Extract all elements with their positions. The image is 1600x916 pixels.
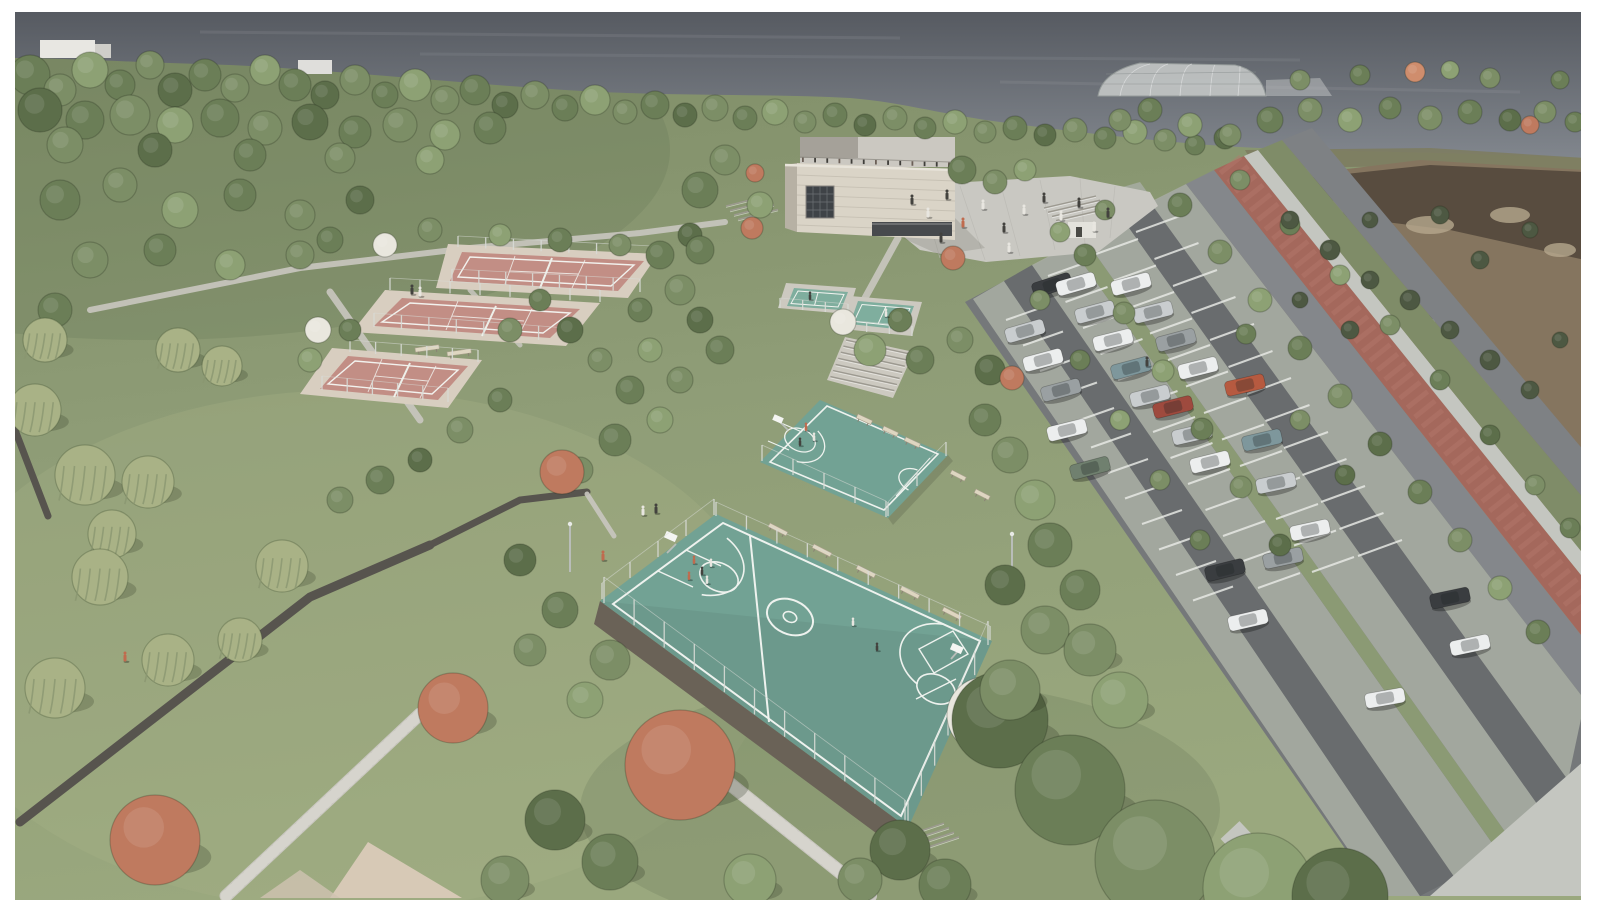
rooftop-person — [826, 158, 828, 163]
tree-highlight — [592, 351, 603, 362]
tree-highlight — [1222, 127, 1232, 137]
tree-highlight — [892, 311, 903, 322]
tree-highlight — [585, 89, 599, 103]
tree-highlight — [617, 103, 628, 114]
tree-highlight — [642, 341, 653, 352]
tree-highlight — [1353, 68, 1362, 77]
tree-highlight — [596, 645, 614, 663]
tree-highlight — [1097, 130, 1107, 140]
tree-highlight — [1007, 119, 1018, 130]
tree-highlight — [547, 456, 567, 476]
tree-highlight — [1028, 612, 1050, 634]
tree-highlight — [1452, 531, 1463, 542]
person-body — [813, 435, 816, 441]
tree-highlight — [1252, 291, 1263, 302]
tree-highlight — [1306, 861, 1349, 904]
tree-highlight — [519, 638, 533, 652]
tree-highlight — [284, 73, 298, 87]
person-body — [1008, 246, 1011, 253]
tree-highlight — [435, 90, 448, 103]
tree-highlight — [525, 85, 538, 98]
tree-highlight — [1554, 73, 1562, 81]
tree-highlight — [412, 451, 423, 462]
tree-highlight — [25, 94, 45, 114]
person-head — [852, 617, 855, 620]
tree-highlight — [302, 351, 313, 362]
tree-highlight — [239, 143, 253, 157]
tree-highlight — [149, 238, 163, 252]
tree-highlight — [290, 245, 303, 258]
tree-highlight — [706, 99, 718, 111]
person-head — [701, 566, 704, 569]
tree-highlight — [124, 807, 165, 848]
tree-highlight — [1403, 293, 1412, 302]
person-body — [701, 569, 704, 575]
tree-highlight — [879, 828, 906, 855]
tree-highlight — [991, 570, 1009, 588]
tree-highlight — [488, 862, 510, 884]
person-body — [124, 655, 127, 662]
tree-highlight — [650, 245, 663, 258]
person-body — [1107, 211, 1110, 218]
tree-highlight — [309, 321, 321, 333]
tree-highlight — [1483, 71, 1492, 80]
tree-highlight — [987, 173, 998, 184]
tree-highlight — [1113, 413, 1122, 422]
tree-highlight — [917, 120, 927, 130]
tree-highlight — [207, 104, 224, 121]
tree-highlight — [72, 106, 89, 123]
tree-highlight — [1017, 162, 1027, 172]
tree-highlight — [1364, 214, 1371, 221]
tree-highlight — [110, 74, 124, 88]
person-head — [693, 555, 696, 558]
tree-highlight — [1032, 750, 1082, 800]
dirt-mound — [1544, 243, 1576, 257]
person-head — [706, 575, 709, 578]
tree-highlight — [492, 391, 503, 402]
rooftop-person — [875, 160, 877, 165]
tree-highlight — [465, 79, 479, 93]
person-head — [813, 432, 816, 435]
tree-highlight — [420, 150, 433, 163]
willow-tree — [25, 658, 85, 718]
tree-highlight — [590, 842, 615, 867]
tree-highlight — [682, 226, 693, 237]
tree-highlight — [797, 114, 807, 124]
building-upper-dark — [800, 137, 858, 158]
tree-highlight — [612, 237, 622, 247]
tree-highlight — [140, 55, 153, 68]
tree-highlight — [1383, 318, 1392, 327]
tree-highlight — [290, 204, 304, 218]
person-body — [642, 509, 645, 516]
tree-highlight — [345, 69, 359, 83]
rooftop-person — [802, 158, 804, 163]
tree-highlight — [561, 321, 573, 333]
tree-highlight — [1194, 421, 1204, 431]
person-body — [852, 620, 855, 626]
person-body — [693, 558, 696, 564]
tree-highlight — [163, 78, 178, 93]
tree-highlight — [502, 321, 513, 332]
tree-highlight — [46, 185, 64, 203]
person-body — [1060, 214, 1063, 221]
tree-highlight — [1524, 224, 1531, 231]
tree-highlight — [1408, 65, 1417, 74]
tree-highlight — [670, 279, 684, 293]
person-head — [602, 551, 605, 554]
tree-highlight — [1434, 208, 1442, 216]
tree-highlight — [253, 116, 268, 131]
tree-highlight — [632, 301, 643, 312]
rooftop-person — [912, 161, 914, 166]
tree-highlight — [116, 100, 134, 118]
park-rendering-page — [0, 0, 1600, 916]
tree-highlight — [1239, 327, 1248, 336]
tree-highlight — [1462, 103, 1473, 114]
tree-highlight — [1483, 428, 1492, 437]
person-head — [1107, 208, 1110, 211]
tree-highlight — [1233, 173, 1242, 182]
tree-highlight — [1072, 631, 1095, 654]
tree-highlight — [677, 106, 688, 117]
tree-highlight — [691, 311, 703, 323]
person-head — [911, 195, 914, 198]
tree-highlight — [1524, 383, 1532, 391]
building-side — [785, 163, 797, 232]
tree-highlight — [1233, 479, 1243, 489]
rooftop-person — [899, 161, 901, 166]
tree-highlight — [1212, 243, 1223, 254]
tree-highlight — [143, 138, 158, 153]
tree-highlight — [1524, 118, 1532, 126]
tree-highlight — [1188, 138, 1197, 147]
tree-highlight — [376, 86, 388, 98]
tree-highlight — [710, 340, 723, 353]
tree-highlight — [1364, 273, 1372, 281]
tree-highlight — [572, 687, 588, 703]
tree-highlight — [194, 63, 208, 77]
person-body — [706, 578, 709, 584]
tree-highlight — [859, 338, 873, 352]
person-body — [799, 440, 802, 446]
tree-highlight — [1116, 305, 1126, 315]
tree-highlight — [1067, 121, 1078, 132]
tree-highlight — [422, 221, 433, 232]
tree-highlight — [377, 236, 388, 247]
tree-highlight — [220, 254, 234, 268]
rooftop-person — [887, 160, 889, 165]
tree-highlight — [887, 109, 898, 120]
person-head — [927, 208, 930, 211]
tree-highlight — [344, 120, 358, 134]
tree-highlight — [1293, 73, 1302, 82]
tree-highlight — [1412, 483, 1423, 494]
tree-highlight — [690, 240, 703, 253]
tree-highlight — [1004, 369, 1015, 380]
willow-tree — [23, 318, 67, 362]
tree-highlight — [766, 103, 778, 115]
willow-tree — [72, 549, 128, 605]
person-body — [655, 507, 658, 514]
person-head — [1078, 198, 1081, 201]
tree-highlight — [1302, 101, 1313, 112]
tree-highlight — [370, 470, 383, 483]
person-body — [1023, 208, 1026, 215]
tree-highlight — [43, 298, 58, 313]
tree-highlight — [255, 59, 269, 73]
tree-highlight — [1033, 293, 1042, 302]
tree-highlight — [947, 113, 958, 124]
person-head — [809, 291, 812, 294]
tree-highlight — [1323, 243, 1332, 252]
dirt-mound — [1490, 207, 1530, 223]
person-body — [602, 554, 605, 561]
tree-highlight — [945, 249, 956, 260]
tree-highlight — [429, 682, 461, 714]
tree-highlight — [1021, 485, 1039, 503]
person-head — [1146, 357, 1149, 360]
light-pole-head — [1010, 532, 1014, 536]
person-head — [124, 652, 127, 655]
tree-highlight — [52, 132, 68, 148]
tree-highlight — [1433, 373, 1442, 382]
tree-highlight — [162, 112, 178, 128]
tree-highlight — [1502, 112, 1512, 122]
person-body — [1043, 196, 1046, 203]
willow-tree — [218, 618, 262, 662]
person-body — [876, 645, 879, 651]
tree-highlight — [1492, 579, 1503, 590]
person-head — [1060, 211, 1063, 214]
tree-highlight — [1338, 468, 1347, 477]
tree-highlight — [77, 247, 93, 263]
tree-highlight — [1157, 132, 1167, 142]
tree-highlight — [556, 99, 568, 111]
tree-highlight — [1284, 213, 1292, 221]
tree-highlight — [1113, 816, 1167, 870]
tree-highlight — [1073, 353, 1082, 362]
tree-highlight — [751, 196, 763, 208]
tree-highlight — [330, 147, 344, 161]
person-body — [940, 236, 943, 243]
tree-highlight — [744, 220, 754, 230]
person-head — [411, 285, 414, 288]
tree-highlight — [1100, 680, 1125, 705]
person-head — [642, 506, 645, 509]
tree-highlight — [1037, 127, 1047, 137]
tree-highlight — [297, 109, 313, 125]
community-building — [785, 137, 955, 240]
tree-highlight — [1066, 575, 1084, 593]
tree-highlight — [952, 160, 965, 173]
rooftop-person — [839, 159, 841, 164]
tree-highlight — [1333, 268, 1342, 277]
tree-highlight — [229, 183, 243, 197]
person-head — [419, 287, 422, 290]
rooftop-person — [814, 158, 816, 163]
tree-highlight — [1372, 435, 1383, 446]
tree-highlight — [16, 60, 34, 78]
tree-highlight — [910, 350, 923, 363]
person-body — [885, 311, 888, 317]
rooftop-person — [936, 162, 938, 167]
person-head — [1023, 205, 1026, 208]
tree-highlight — [331, 491, 343, 503]
tree-highlight — [435, 124, 449, 138]
tree-highlight — [1292, 339, 1303, 350]
tree-highlight — [1382, 100, 1392, 110]
tree-highlight — [642, 725, 692, 775]
tree-highlight — [321, 231, 333, 243]
tree-highlight — [1293, 413, 1302, 422]
tree-highlight — [620, 380, 633, 393]
tree-highlight — [671, 371, 683, 383]
tree-highlight — [1035, 529, 1055, 549]
tree-highlight — [1537, 104, 1547, 114]
person-head — [962, 218, 965, 221]
tree-highlight — [1568, 115, 1577, 124]
tree-highlight — [1342, 111, 1353, 122]
willow-tree — [122, 456, 174, 508]
person-head — [799, 437, 802, 440]
tree-highlight — [315, 85, 328, 98]
person-head — [946, 190, 949, 193]
willow-tree — [256, 540, 308, 592]
tree-highlight — [1444, 323, 1452, 331]
tree-highlight — [1112, 112, 1122, 122]
tree-highlight — [1272, 537, 1282, 547]
tree-highlight — [534, 798, 561, 825]
tree-highlight — [451, 421, 463, 433]
tree-highlight — [997, 442, 1013, 458]
tree-highlight — [404, 73, 418, 87]
tree-highlight — [1077, 247, 1087, 257]
person-body — [805, 425, 808, 431]
tree-highlight — [1554, 334, 1561, 341]
person-head — [940, 233, 943, 236]
person-head — [655, 504, 658, 507]
tree-highlight — [1530, 623, 1541, 634]
tree-highlight — [1172, 196, 1183, 207]
person-body — [411, 288, 414, 295]
tree-highlight — [479, 116, 493, 130]
tree-highlight — [350, 190, 363, 203]
person-head — [1008, 243, 1011, 246]
person-head — [710, 558, 713, 561]
tree-highlight — [1182, 116, 1193, 127]
tree-highlight — [1261, 111, 1273, 123]
person-head — [1003, 223, 1006, 226]
person-head — [1093, 222, 1096, 225]
tree-highlight — [1332, 387, 1343, 398]
willow-tree — [142, 634, 194, 686]
person-body — [809, 294, 812, 300]
tree-highlight — [845, 864, 865, 884]
willow-tree — [202, 346, 242, 386]
tree-highlight — [732, 861, 755, 884]
tree-highlight — [834, 313, 846, 325]
tree-highlight — [645, 95, 658, 108]
tree-highlight — [1483, 353, 1492, 362]
tree-highlight — [857, 117, 867, 127]
tree-highlight — [951, 331, 963, 343]
tree-highlight — [687, 177, 703, 193]
tree-highlight — [388, 113, 403, 128]
tree-highlight — [1142, 101, 1153, 112]
person-head — [805, 422, 808, 425]
tree-highlight — [1422, 109, 1433, 120]
tree-highlight — [715, 149, 729, 163]
tree-highlight — [509, 548, 523, 562]
person-head — [1043, 193, 1046, 196]
tree-highlight — [342, 322, 352, 332]
tree-highlight — [989, 668, 1016, 695]
light-pole-head — [568, 522, 572, 526]
tree-highlight — [1193, 533, 1202, 542]
person-body — [1093, 225, 1096, 232]
willow-tree — [9, 384, 61, 436]
tree-highlight — [749, 166, 757, 174]
tree-highlight — [737, 109, 748, 120]
tree-highlight — [77, 57, 93, 73]
person-body — [1003, 226, 1006, 233]
tree-highlight — [532, 292, 542, 302]
kiosk-door — [1076, 227, 1082, 237]
park-aerial-rendering — [0, 0, 1600, 916]
tree-highlight — [1294, 294, 1301, 301]
tree-highlight — [1563, 521, 1572, 530]
willow-tree — [55, 445, 115, 505]
willow-tree — [156, 328, 200, 372]
person-body — [688, 574, 691, 580]
person-body — [1078, 201, 1081, 208]
tree-highlight — [492, 227, 502, 237]
tree-highlight — [547, 597, 563, 613]
tree-highlight — [827, 106, 838, 117]
tree-highlight — [977, 124, 987, 134]
person-head — [885, 308, 888, 311]
tree-highlight — [1344, 323, 1352, 331]
person-body — [1146, 360, 1149, 367]
tree-highlight — [1098, 203, 1107, 212]
person-body — [911, 198, 914, 205]
rooftop-person — [863, 160, 865, 165]
tree-highlight — [1153, 473, 1162, 482]
tree-highlight — [974, 408, 988, 422]
rooftop-person — [851, 159, 853, 164]
person-body — [946, 193, 949, 200]
tree-highlight — [1053, 225, 1062, 234]
person-body — [962, 221, 965, 228]
person-body — [927, 211, 930, 218]
tree-highlight — [552, 231, 563, 242]
tree-highlight — [108, 173, 123, 188]
tree-highlight — [1474, 253, 1482, 261]
person-head — [982, 200, 985, 203]
person-head — [876, 642, 879, 645]
tree-highlight — [651, 411, 663, 423]
tree-highlight — [1155, 363, 1165, 373]
tree-highlight — [980, 359, 994, 373]
tree-highlight — [167, 197, 183, 213]
rooftop-person — [924, 162, 926, 167]
tree-highlight — [604, 428, 618, 442]
tree-highlight — [1444, 63, 1452, 71]
tree-highlight — [1528, 478, 1537, 487]
person-head — [688, 571, 691, 574]
